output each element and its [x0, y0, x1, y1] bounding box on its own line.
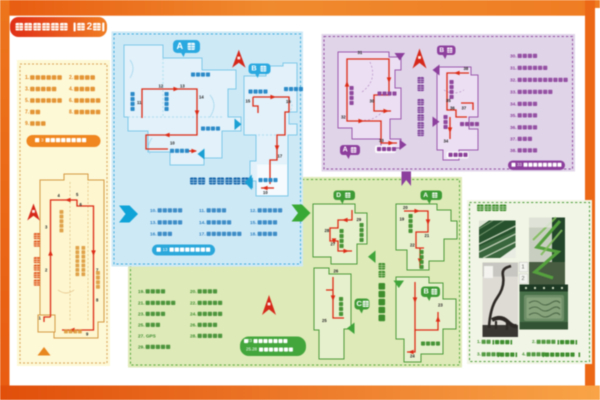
svg-text:9.: 9.: [25, 121, 30, 127]
svg-text:17.: 17.: [199, 231, 206, 236]
svg-text:A: A: [423, 192, 428, 199]
svg-text:13: 13: [163, 247, 169, 252]
svg-text:35.: 35.: [510, 113, 517, 118]
svg-text:29.: 29.: [138, 344, 145, 349]
svg-text:12: 12: [159, 84, 164, 89]
svg-text:5.: 5.: [25, 98, 30, 104]
svg-text:30: 30: [370, 98, 375, 103]
svg-text:4.: 4.: [522, 352, 526, 357]
svg-text:24.: 24.: [190, 311, 197, 316]
svg-text:33: 33: [517, 162, 522, 167]
svg-text:34.: 34.: [510, 101, 517, 106]
svg-text:26: 26: [334, 268, 339, 273]
svg-text:15.: 15.: [250, 220, 257, 225]
svg-text:37: 37: [462, 105, 467, 110]
svg-text:15: 15: [246, 98, 251, 103]
svg-text:2: 2: [522, 276, 525, 282]
svg-text:20.: 20.: [190, 289, 197, 294]
svg-text:11: 11: [137, 100, 142, 105]
svg-text:23: 23: [438, 302, 443, 307]
svg-text:6.: 6.: [69, 98, 74, 104]
svg-text:30.: 30.: [510, 53, 517, 58]
svg-text:10.: 10.: [150, 208, 157, 213]
svg-text:27: 27: [331, 241, 336, 246]
svg-text:13: 13: [180, 84, 185, 89]
svg-text:A: A: [177, 41, 184, 51]
svg-text:38: 38: [464, 66, 469, 71]
svg-text:2.: 2.: [532, 339, 536, 344]
svg-text:B: B: [439, 47, 444, 54]
svg-text:22: 22: [410, 242, 415, 247]
svg-text:36.: 36.: [510, 125, 517, 130]
svg-text:21.: 21.: [138, 300, 145, 305]
svg-text:14.: 14.: [199, 220, 206, 225]
svg-text:1.: 1.: [25, 75, 30, 81]
svg-text:7.: 7.: [25, 110, 30, 116]
svg-text:32: 32: [341, 114, 346, 119]
svg-text:25.28: 25.28: [246, 347, 258, 352]
svg-text:32.: 32.: [510, 77, 517, 82]
svg-text:16.: 16.: [150, 231, 157, 236]
svg-text:12.: 12.: [250, 208, 257, 213]
svg-text:16: 16: [286, 99, 291, 104]
svg-text:19.: 19.: [138, 289, 145, 294]
svg-text:31: 31: [358, 50, 363, 55]
svg-text:25.: 25.: [138, 322, 145, 327]
svg-text:1.: 1.: [477, 339, 481, 344]
svg-text:31.: 31.: [510, 65, 517, 70]
svg-text:29: 29: [357, 217, 362, 222]
svg-text:37.: 37.: [510, 136, 517, 141]
svg-text:22.: 22.: [190, 300, 197, 305]
svg-text:3.: 3.: [25, 87, 30, 93]
svg-text:3.: 3.: [477, 352, 481, 357]
svg-text:27. GPS: 27. GPS: [138, 333, 156, 338]
svg-text:26.: 26.: [190, 322, 197, 327]
svg-text:11.: 11.: [199, 208, 205, 213]
svg-text:24: 24: [410, 353, 415, 358]
svg-text:3: 3: [41, 137, 44, 142]
svg-text:33.: 33.: [510, 89, 517, 94]
svg-text:4.: 4.: [69, 87, 74, 93]
svg-text:23.: 23.: [138, 311, 145, 316]
svg-text:21: 21: [425, 233, 430, 238]
svg-text:B: B: [251, 64, 256, 73]
svg-text:10: 10: [170, 140, 175, 145]
svg-text:33: 33: [379, 138, 384, 143]
svg-text:28.: 28.: [190, 333, 197, 338]
svg-text:14: 14: [199, 94, 204, 99]
svg-text:1: 1: [522, 264, 525, 270]
svg-text:36: 36: [450, 105, 455, 110]
svg-text:C: C: [356, 299, 362, 308]
svg-text:25: 25: [322, 318, 327, 323]
svg-text:38.: 38.: [510, 148, 517, 153]
svg-text:A: A: [343, 147, 348, 154]
svg-text:2.: 2.: [69, 75, 74, 81]
svg-text:34: 34: [444, 138, 449, 143]
svg-text:20: 20: [403, 205, 408, 210]
svg-text:17: 17: [278, 153, 283, 158]
svg-text:B: B: [424, 287, 429, 296]
svg-text:19: 19: [400, 216, 405, 221]
svg-text:10: 10: [263, 190, 268, 195]
svg-text:8.: 8.: [69, 110, 74, 116]
svg-text:2: 2: [87, 21, 93, 32]
svg-text:28: 28: [325, 228, 330, 233]
svg-text:18.: 18.: [250, 231, 257, 236]
svg-text:13.: 13.: [150, 220, 157, 225]
svg-text:D: D: [336, 192, 341, 199]
